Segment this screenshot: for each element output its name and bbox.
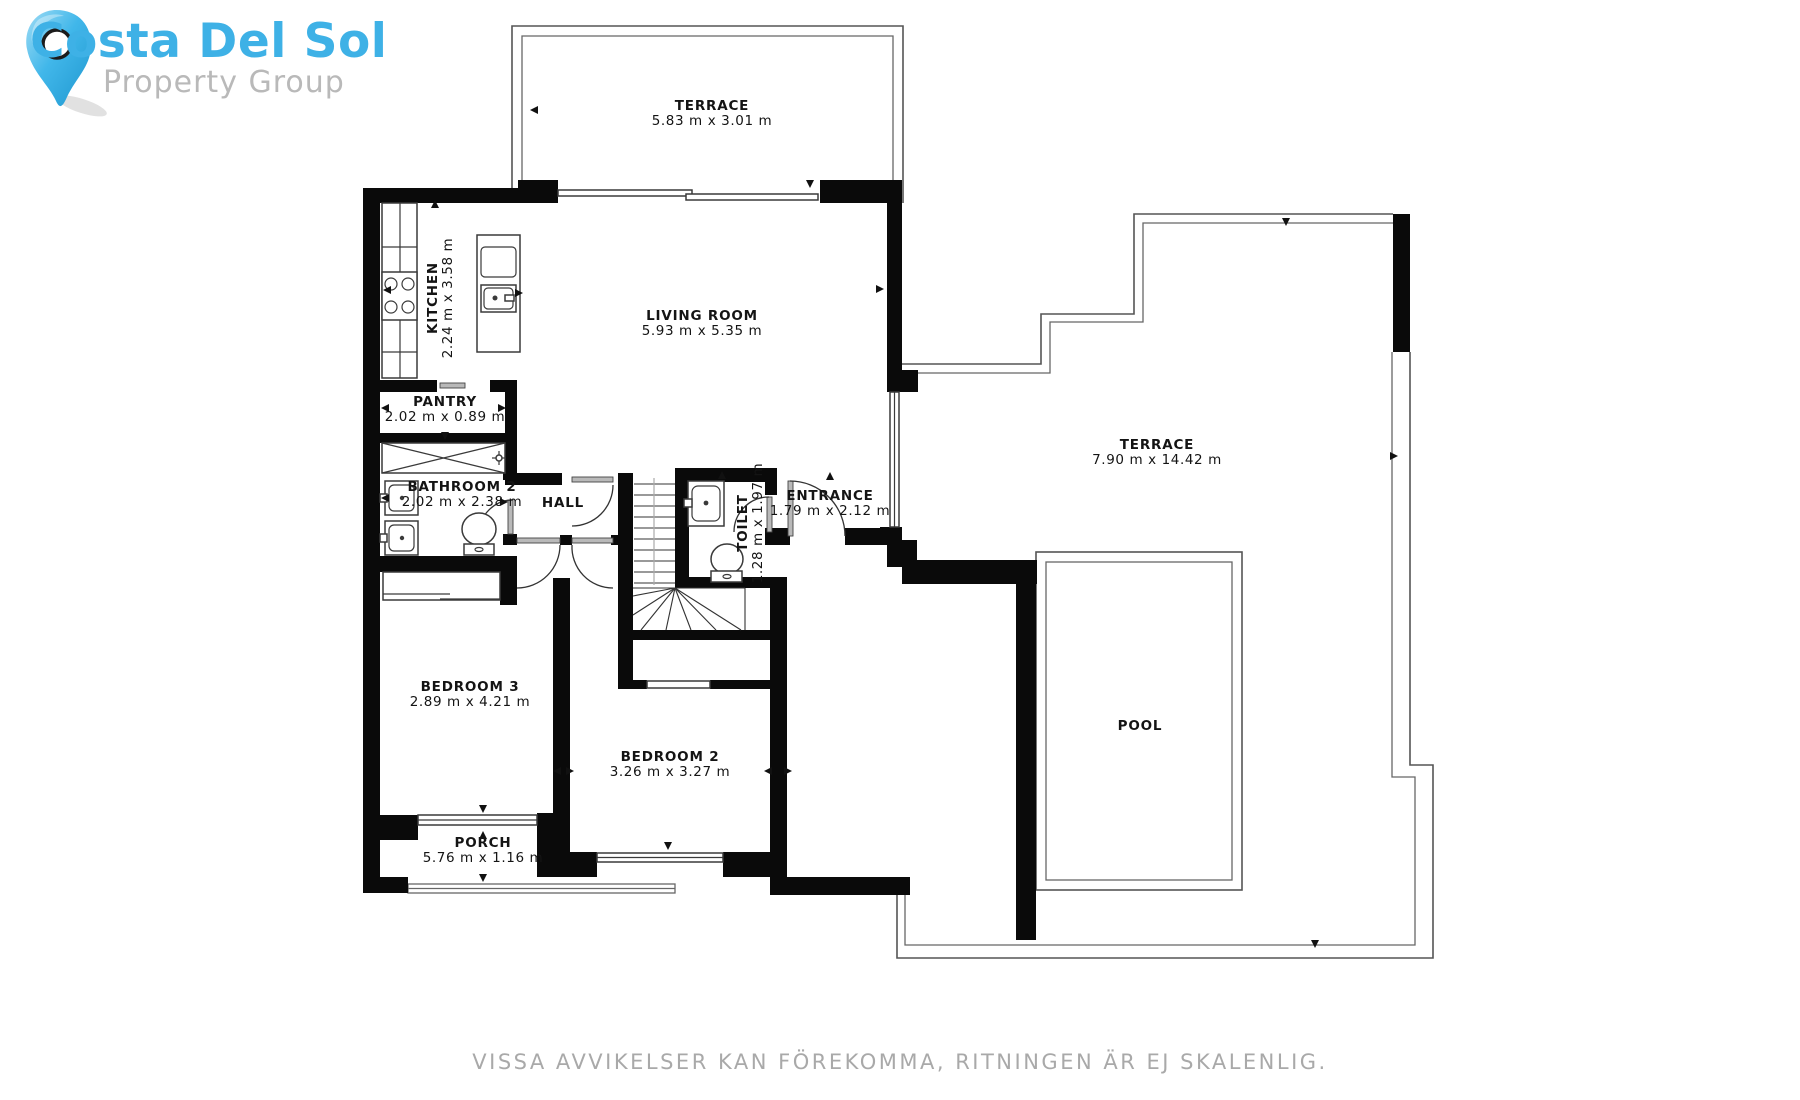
sliding-door-panel	[558, 190, 692, 196]
room-label-pool: POOL	[1118, 718, 1163, 734]
room-label-kitchen: KITCHEN2.24 m x 3.58 m	[425, 238, 456, 359]
room-dimensions: 2.02 m x 2.38 m	[402, 494, 523, 510]
room-dimensions: 2.89 m x 4.21 m	[410, 694, 531, 710]
room-dimensions: 2.24 m x 3.58 m	[440, 238, 456, 359]
room-dimensions: 1.28 m x 1.97 m	[750, 463, 766, 584]
room-dimensions: 1.79 m x 2.12 m	[770, 503, 891, 519]
room-name: TERRACE	[675, 98, 749, 114]
room-name: TOILET	[735, 494, 751, 552]
room-name: BEDROOM 2	[621, 749, 720, 765]
room-label-living-room: LIVING ROOM5.93 m x 5.35 m	[642, 308, 763, 339]
room-dimensions: 5.76 m x 1.16 m	[423, 850, 544, 866]
room-label-terrace-top: TERRACE5.83 m x 3.01 m	[652, 98, 773, 129]
room-name: KITCHEN	[425, 262, 441, 334]
room-label-bathroom-2: BATHROOM 22.02 m x 2.38 m	[402, 479, 523, 510]
room-label-pantry: PANTRY2.02 m x 0.89 m	[385, 394, 506, 425]
toilet-fixture	[462, 513, 496, 545]
floorplan-canvas: Costa Del Sol Property Group	[0, 0, 1800, 1100]
room-name: HALL	[542, 495, 584, 511]
room-name: PANTRY	[413, 394, 477, 410]
room-dimensions: 5.83 m x 3.01 m	[652, 113, 773, 129]
room-name: BEDROOM 3	[421, 679, 520, 695]
sliding-door-panel	[686, 194, 818, 200]
room-label-terrace-right: TERRACE7.90 m x 14.42 m	[1092, 437, 1222, 468]
room-dimensions: 3.26 m x 3.27 m	[610, 764, 731, 780]
room-label-bedroom-2: BEDROOM 23.26 m x 3.27 m	[610, 749, 731, 780]
room-name: BATHROOM 2	[407, 479, 516, 495]
terrace-right-outline	[897, 214, 1433, 958]
wardrobe	[383, 572, 500, 600]
brand-name: Costa Del Sol	[30, 14, 387, 69]
disclaimer-text: VISSA AVVIKELSER KAN FÖREKOMMA, RITNINGE…	[472, 1049, 1327, 1074]
room-label-hall: HALL	[542, 495, 584, 511]
room-name: ENTRANCE	[786, 488, 873, 504]
room-name: LIVING ROOM	[646, 308, 758, 324]
room-dimensions: 2.02 m x 0.89 m	[385, 409, 506, 425]
brand-tagline: Property Group	[103, 65, 345, 100]
room-label-bedroom-3: BEDROOM 32.89 m x 4.21 m	[410, 679, 531, 710]
bedroom2-opening	[647, 681, 710, 688]
room-name: POOL	[1118, 718, 1163, 734]
room-label-porch: PORCH5.76 m x 1.16 m	[423, 835, 544, 866]
room-name: TERRACE	[1120, 437, 1194, 453]
room-label-entrance: ENTRANCE1.79 m x 2.12 m	[770, 488, 891, 519]
room-dimensions: 7.90 m x 14.42 m	[1092, 452, 1222, 468]
porch-outline	[408, 884, 675, 893]
room-name: PORCH	[455, 835, 512, 851]
pantry-door-leaf	[440, 383, 465, 388]
room-dimensions: 5.93 m x 5.35 m	[642, 323, 763, 339]
brand-logo: Costa Del Sol Property Group	[26, 10, 387, 121]
floorplan-page: Costa Del Sol Property Group	[0, 0, 1800, 1100]
